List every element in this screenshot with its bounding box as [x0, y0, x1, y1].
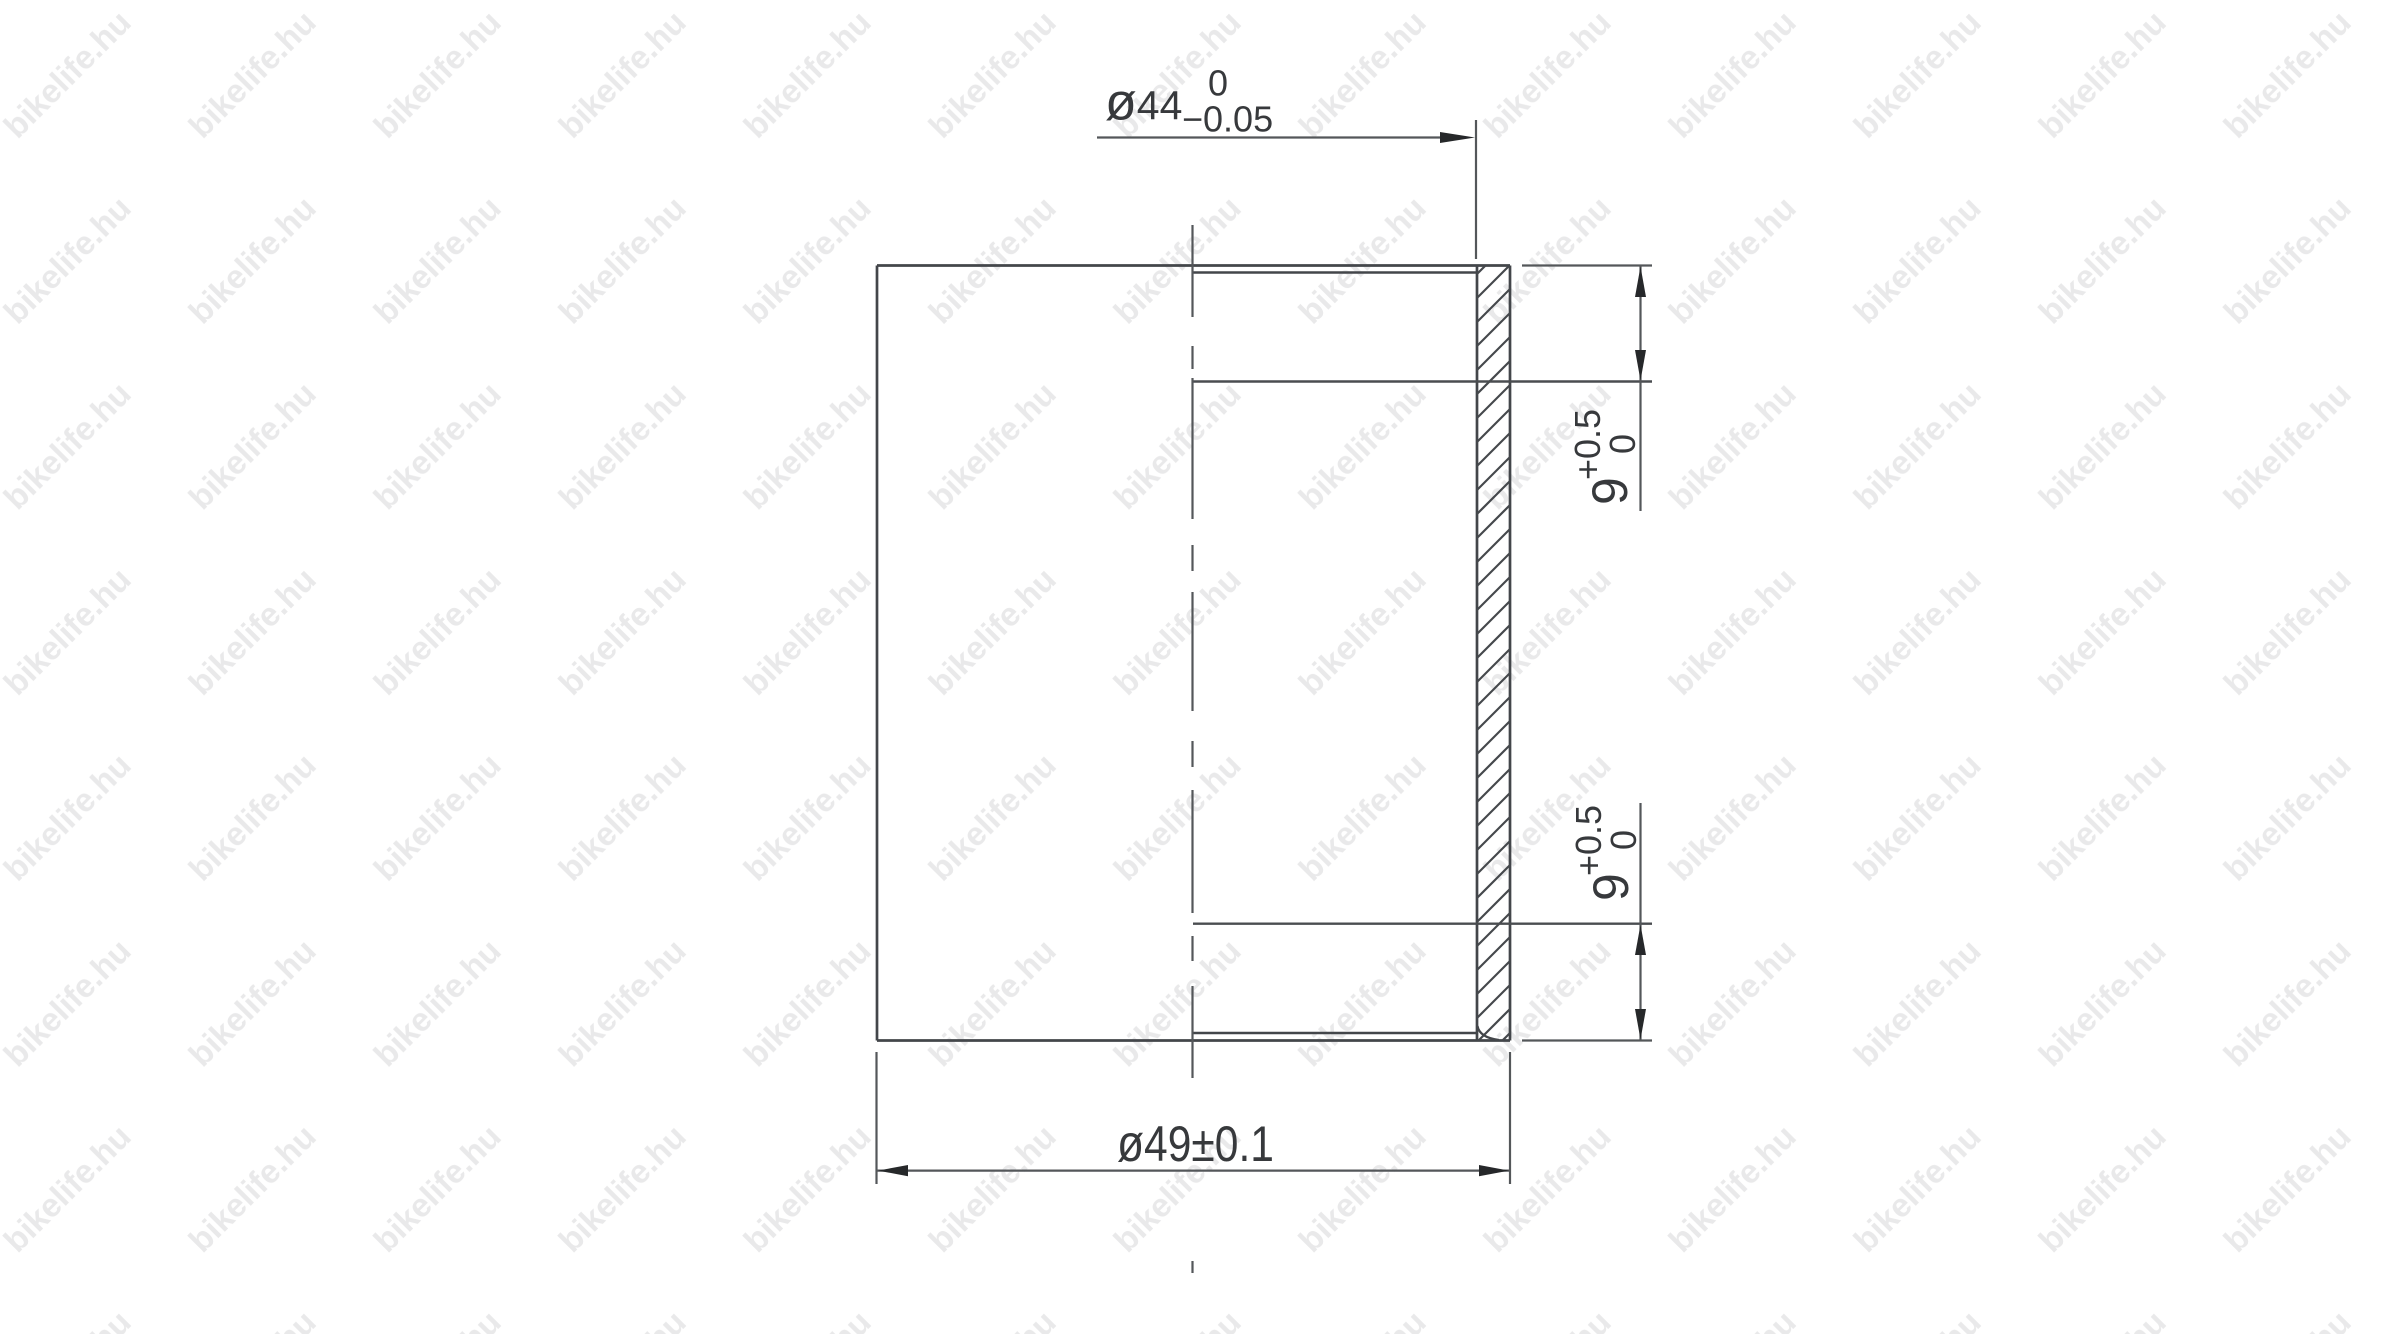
svg-text:9: 9: [1582, 477, 1638, 505]
svg-text:0: 0: [1602, 434, 1643, 454]
svg-text:−0.05: −0.05: [1182, 99, 1273, 140]
svg-text:0: 0: [1603, 830, 1644, 850]
svg-text:0: 0: [1208, 63, 1228, 104]
svg-text:ø49±0.1: ø49±0.1: [1117, 1115, 1274, 1173]
svg-text:ø44: ø44: [1105, 74, 1182, 132]
svg-text:9: 9: [1583, 873, 1639, 901]
